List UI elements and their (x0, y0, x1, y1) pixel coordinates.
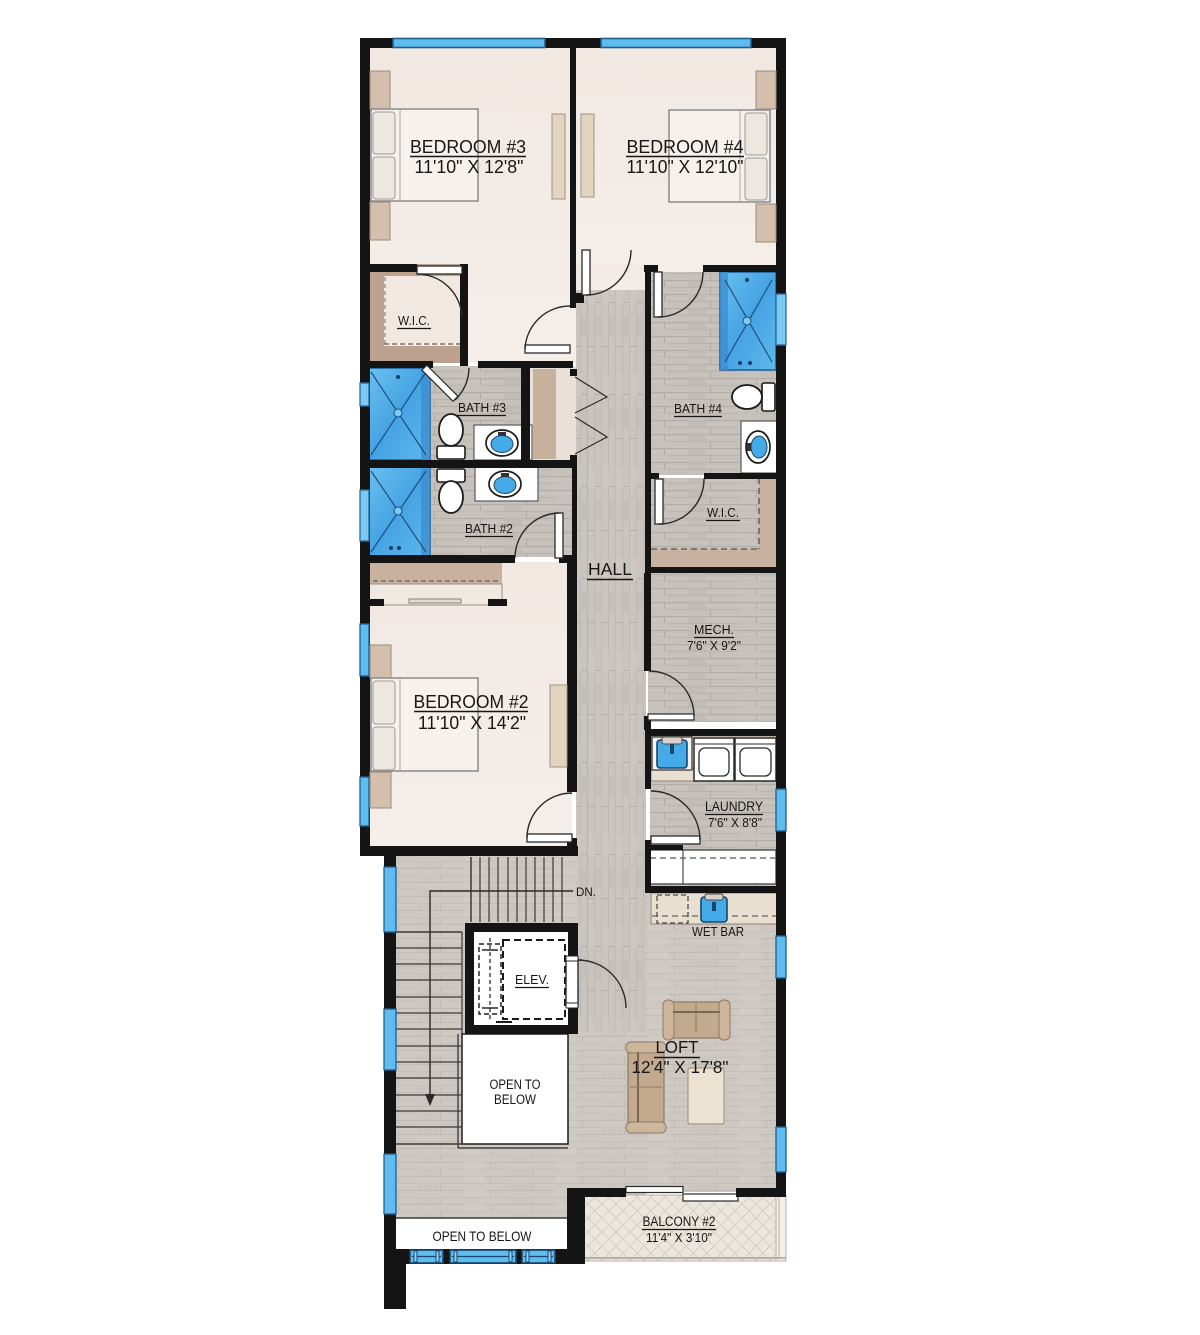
svg-text:HALL: HALL (588, 559, 632, 579)
svg-text:11'10" X 14'2": 11'10" X 14'2" (418, 713, 526, 733)
svg-text:12'4" X 17'8": 12'4" X 17'8" (632, 1057, 729, 1077)
svg-text:LAUNDRY: LAUNDRY (705, 798, 764, 814)
svg-text:OPEN TO: OPEN TO (490, 1077, 541, 1092)
svg-text:BALCONY #2: BALCONY #2 (643, 1214, 716, 1229)
svg-text:11'10" X 12'8": 11'10" X 12'8" (415, 157, 524, 177)
svg-text:ELEV.: ELEV. (515, 972, 549, 987)
svg-text:11'4" X 3'10": 11'4" X 3'10" (646, 1231, 712, 1245)
svg-text:BATH #2: BATH #2 (465, 522, 513, 536)
svg-text:LOFT: LOFT (656, 1037, 699, 1057)
svg-text:BEDROOM #4: BEDROOM #4 (627, 137, 744, 157)
svg-text:11'10" X 12'10": 11'10" X 12'10" (627, 157, 744, 177)
svg-text:OPEN TO BELOW: OPEN TO BELOW (433, 1228, 533, 1244)
svg-text:BEDROOM #3: BEDROOM #3 (410, 137, 526, 157)
svg-text:BATH #4: BATH #4 (674, 402, 722, 416)
svg-text:BELOW: BELOW (494, 1092, 536, 1107)
svg-text:WET BAR: WET BAR (692, 924, 744, 939)
svg-text:W.I.C.: W.I.C. (707, 506, 739, 520)
svg-text:7'6" X 9'2": 7'6" X 9'2" (687, 638, 741, 653)
svg-text:MECH.: MECH. (694, 622, 734, 637)
svg-text:W.I.C.: W.I.C. (398, 314, 430, 328)
svg-text:7'6" X 8'8": 7'6" X 8'8" (708, 815, 762, 830)
svg-text:BATH #3: BATH #3 (458, 401, 506, 415)
svg-text:BEDROOM #2: BEDROOM #2 (414, 692, 529, 712)
svg-text:DN.: DN. (576, 887, 596, 899)
